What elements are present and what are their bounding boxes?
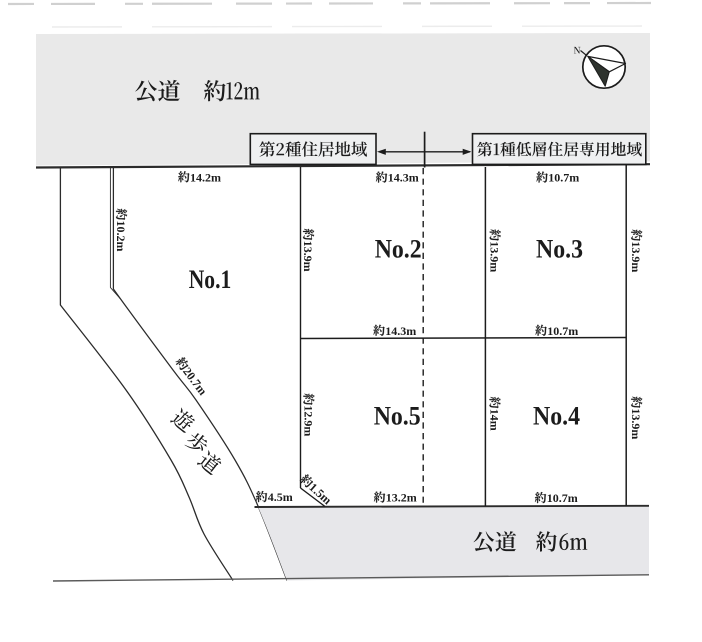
svg-text:14.2m: 14.2m [190,170,221,184]
svg-text:10.7m: 10.7m [547,491,578,505]
svg-text:14m: 14m [487,409,501,431]
svg-text:14.3m: 14.3m [385,324,416,338]
svg-text:No.4: No.4 [533,402,580,431]
svg-text:14.3m: 14.3m [388,171,419,185]
svg-text:No.2: No.2 [375,235,422,264]
svg-text:13.9m: 13.9m [629,241,643,272]
svg-text:10.2m: 10.2m [114,221,128,252]
svg-text:13.9m: 13.9m [488,241,502,272]
svg-text:12.9m: 12.9m [301,405,315,436]
svg-text:No.3: No.3 [536,235,583,264]
svg-text:10.7m: 10.7m [548,171,579,185]
svg-text:4.5m: 4.5m [268,490,293,504]
svg-text:No.5: No.5 [374,402,421,431]
svg-text:13.2m: 13.2m [386,491,417,505]
svg-text:No.1: No.1 [189,265,232,294]
svg-text:10.7m: 10.7m [547,324,578,338]
svg-text:13.9m: 13.9m [301,241,315,272]
svg-text:13.9m: 13.9m [629,408,643,439]
